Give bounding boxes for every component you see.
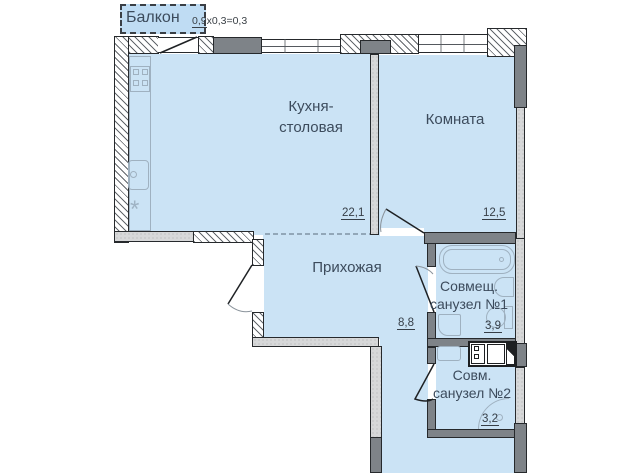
washer-icon: [438, 314, 461, 336]
wall-segment: [370, 346, 382, 438]
wall-segment: [514, 45, 527, 108]
hallway-area-value: 8,8: [397, 317, 415, 330]
entrance-door-opening: [252, 266, 264, 312]
bathroom1-area-value: 3,9: [484, 320, 502, 333]
bathroom2-label: Совм. санузел №2: [412, 366, 532, 402]
kitchen-label-line2: столовая: [279, 119, 343, 136]
wall-segment: [252, 239, 264, 266]
wall-segment: [516, 107, 525, 239]
entrance-door-arc: [228, 304, 252, 312]
room-bottom-partial: [381, 437, 516, 473]
kitchen-area-value: 22,1: [341, 207, 365, 220]
washbasin-icon: [437, 346, 461, 361]
hallway-label: Прихожая: [287, 257, 407, 278]
vent-shaft: [213, 37, 262, 54]
balcony-area-calc: 0,9х0,3=0,3: [192, 15, 247, 27]
wall-segment: [370, 437, 382, 473]
floor-plan: * Балкон 0,9х0,3=0,3: [0, 0, 640, 473]
kitchen-door-opening: [380, 228, 424, 236]
wall-segment: [114, 36, 129, 243]
wall-segment: [252, 337, 379, 347]
window-pane: [262, 46, 340, 47]
wall-segment: [427, 347, 436, 364]
stove-burner-icon: [133, 69, 139, 75]
wall-partition-kitchen-living: [370, 54, 379, 235]
washer-knob-icon: [474, 354, 479, 359]
faucet-icon: [130, 171, 137, 178]
wall-segment: [114, 231, 194, 242]
window-pane: [419, 44, 487, 45]
kitchen-label: Кухня- столовая: [251, 96, 371, 138]
living-label: Комната: [395, 109, 515, 130]
bathroom2-label-line1: Совм.: [453, 367, 492, 383]
window-living: [418, 34, 488, 53]
bathroom1-label-line2: санузел №1: [430, 296, 508, 312]
balcony-area-rest: х0,3=0,3: [207, 15, 248, 27]
room-kitchen-dining: [128, 54, 371, 235]
balcony-area-underlined: 0,9: [192, 15, 207, 28]
living-area-value: 12,5: [482, 207, 506, 220]
stove-burner-icon: [142, 69, 148, 75]
balcony-door-opening: [158, 37, 199, 53]
wall-segment: [427, 312, 436, 339]
wall-segment: [198, 36, 214, 54]
wall-segment: [427, 429, 516, 438]
bathroom1-label: Совмещ. санузел №1: [409, 277, 529, 313]
wall-segment: [424, 232, 516, 244]
bathroom1-label-line1: Совмещ.: [440, 278, 498, 294]
wall-segment: [193, 231, 254, 243]
wall-segment: [514, 423, 527, 473]
bathroom2-area-value: 3,2: [481, 413, 499, 426]
boiler-icon: [506, 343, 515, 365]
entrance-door-leaf: [228, 265, 252, 304]
washer-knob-icon: [474, 346, 479, 351]
kitchen-label-line1: Кухня-: [288, 98, 333, 115]
bathroom2-label-line2: санузел №2: [433, 385, 511, 401]
stove-burner-icon: [142, 80, 148, 86]
window-kitchen: [261, 39, 341, 53]
drain-icon: [499, 257, 504, 262]
snowflake-icon: *: [130, 203, 139, 217]
stove-burner-icon: [133, 80, 139, 86]
wall-segment: [360, 40, 391, 54]
wall-segment: [427, 399, 436, 430]
dryer-icon: [487, 344, 505, 364]
wall-segment: [427, 243, 436, 267]
